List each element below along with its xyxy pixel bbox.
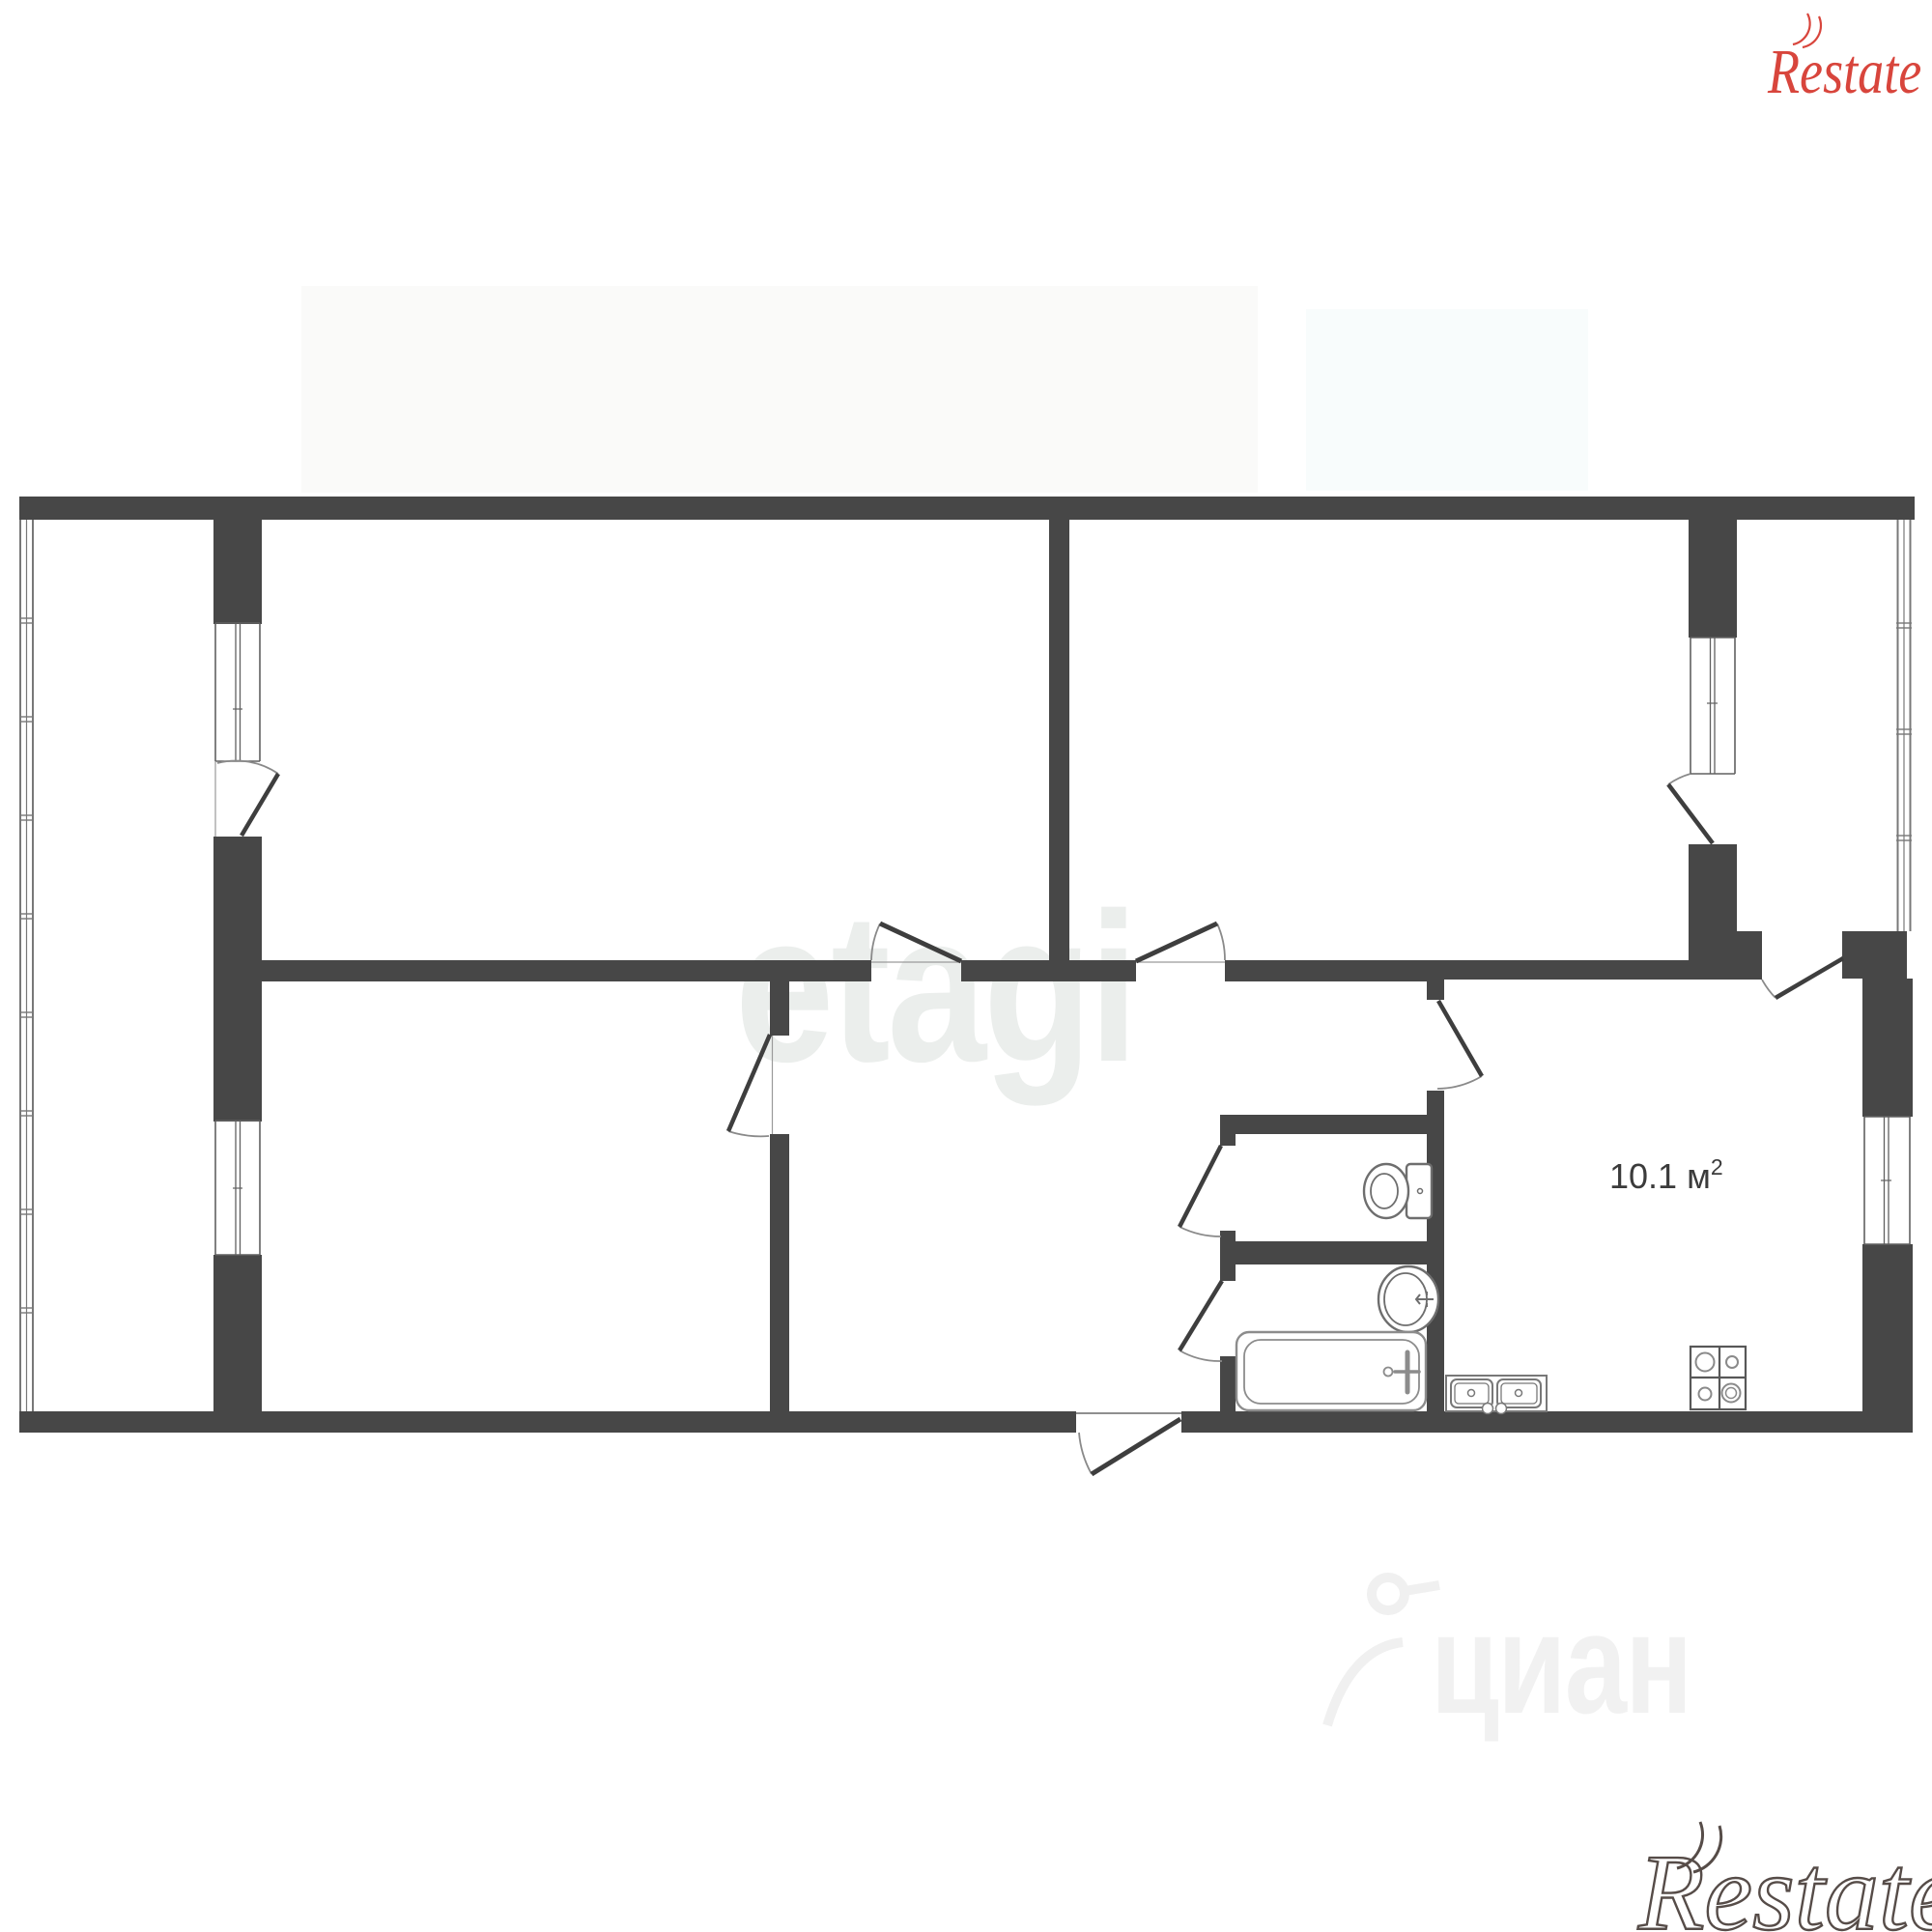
svg-text:Restate: Restate bbox=[1637, 1833, 1932, 1932]
svg-text:etagi: etagi bbox=[735, 869, 1136, 1107]
svg-text:Restate: Restate bbox=[1767, 37, 1921, 107]
svg-text:циан: циан bbox=[1431, 1584, 1691, 1744]
svg-text:10.1 м2: 10.1 м2 bbox=[1609, 1154, 1723, 1196]
